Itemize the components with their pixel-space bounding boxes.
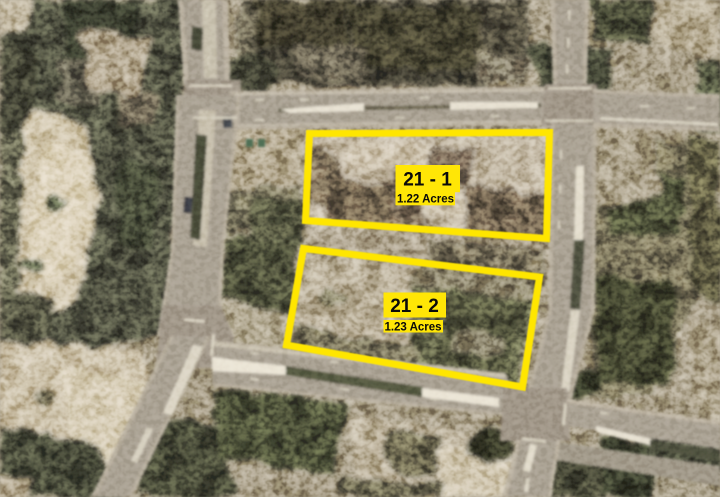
svg-text:21 - 2: 21 - 2 <box>390 296 439 317</box>
svg-text:1.23 Acres: 1.23 Acres <box>384 321 441 333</box>
svg-text:21 - 1: 21 - 1 <box>403 170 452 191</box>
svg-text:1.22 Acres: 1.22 Acres <box>397 193 454 205</box>
